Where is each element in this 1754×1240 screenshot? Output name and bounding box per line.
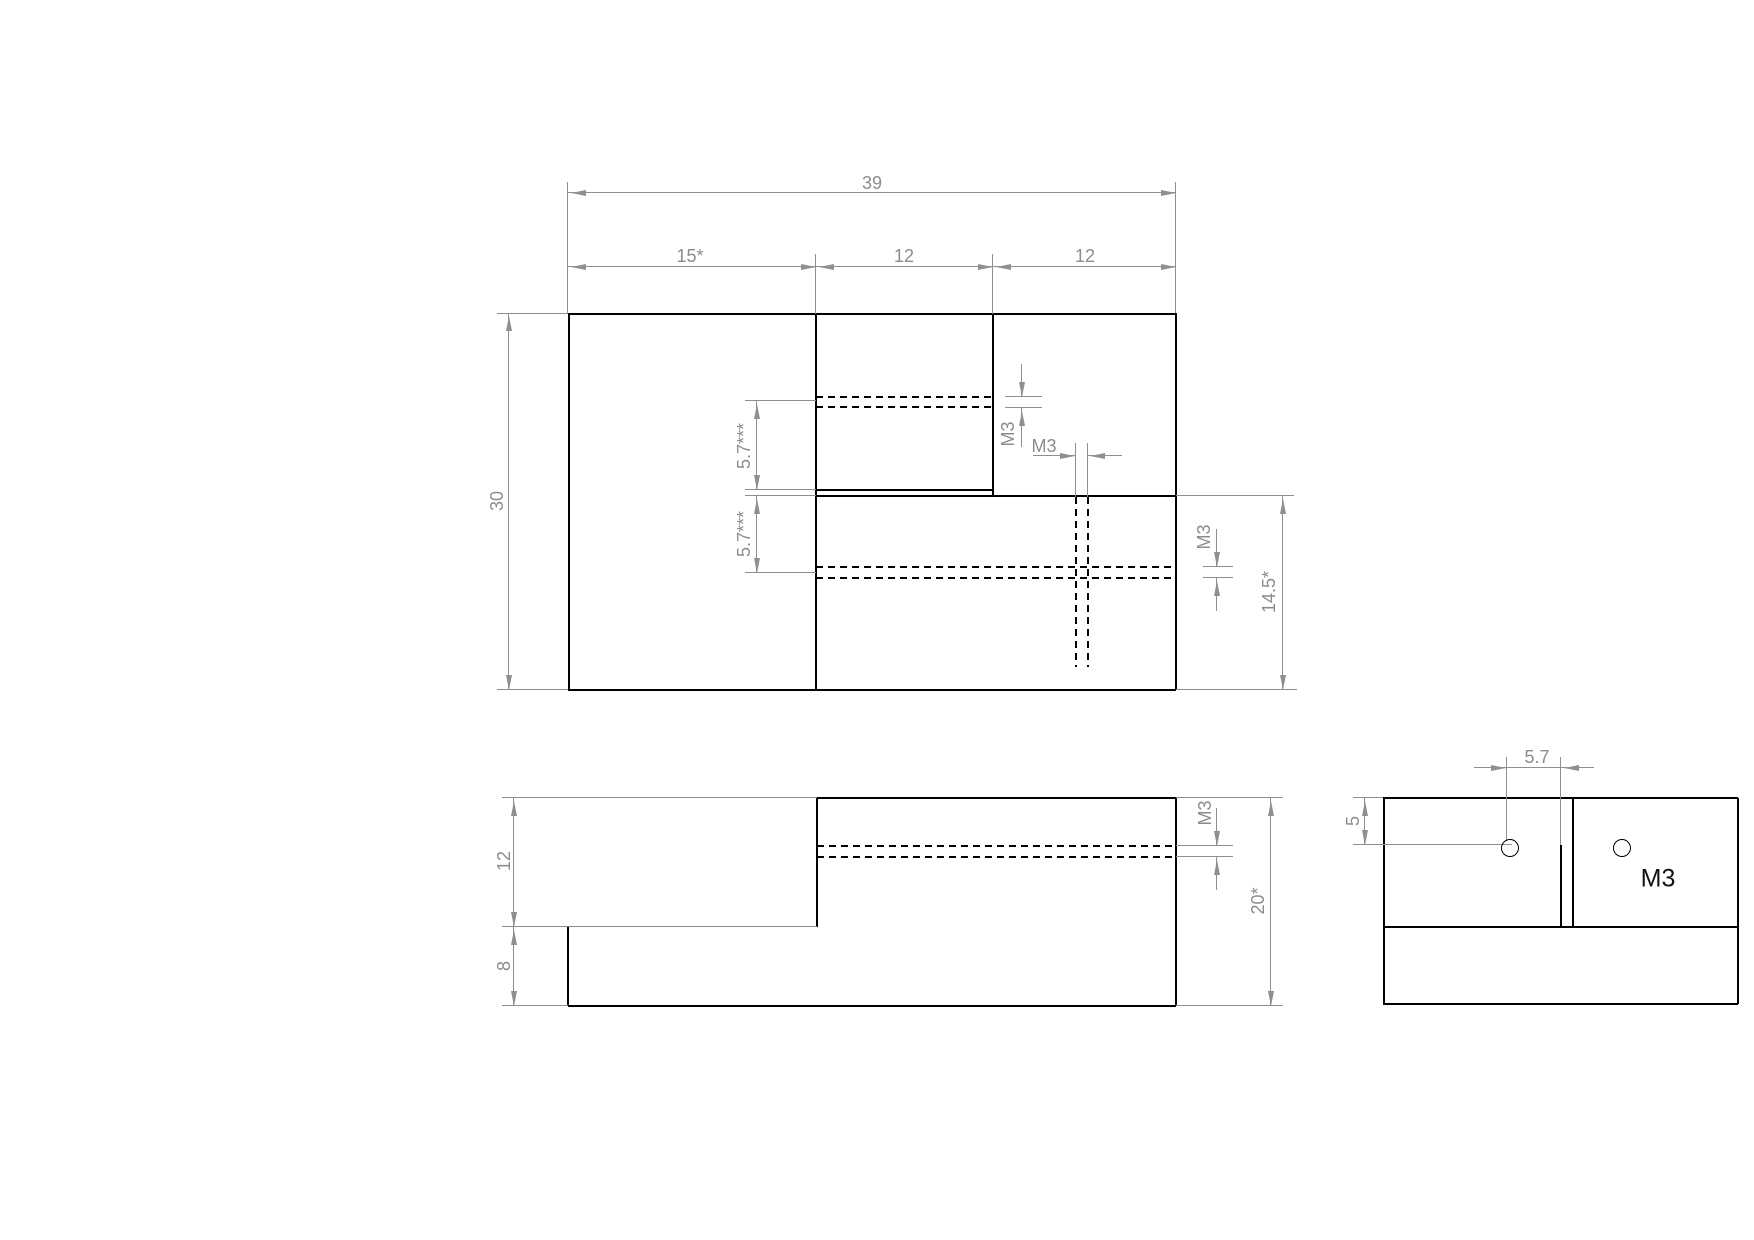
dimension-line <box>1353 797 1383 798</box>
part-edge-line <box>1383 798 1385 1004</box>
part-edge-line <box>1737 798 1739 1004</box>
dim-hole-from-top-label: 5 <box>1344 816 1362 826</box>
side-view: 5.75M3 <box>0 0 1754 1240</box>
drawing-sheet: 3915*1212305.7***5.7***M3M3M314.5* 128M3… <box>0 0 1754 1240</box>
dim-hole-to-step-label: 5.7 <box>1524 748 1549 766</box>
part-edge-line <box>1572 798 1574 927</box>
dimension-line <box>1353 844 1512 845</box>
part-edge-line <box>1560 845 1562 927</box>
arrowhead-icon <box>1491 765 1509 771</box>
arrowhead-icon <box>1362 798 1368 816</box>
part-edge-line <box>1383 1003 1738 1005</box>
thread-side-view-label: M3 <box>1641 867 1676 892</box>
arrowhead-icon <box>1561 765 1579 771</box>
arrowhead-icon <box>1362 830 1368 848</box>
hole-circle-left <box>1501 839 1519 857</box>
hole-circle-right <box>1613 839 1631 857</box>
